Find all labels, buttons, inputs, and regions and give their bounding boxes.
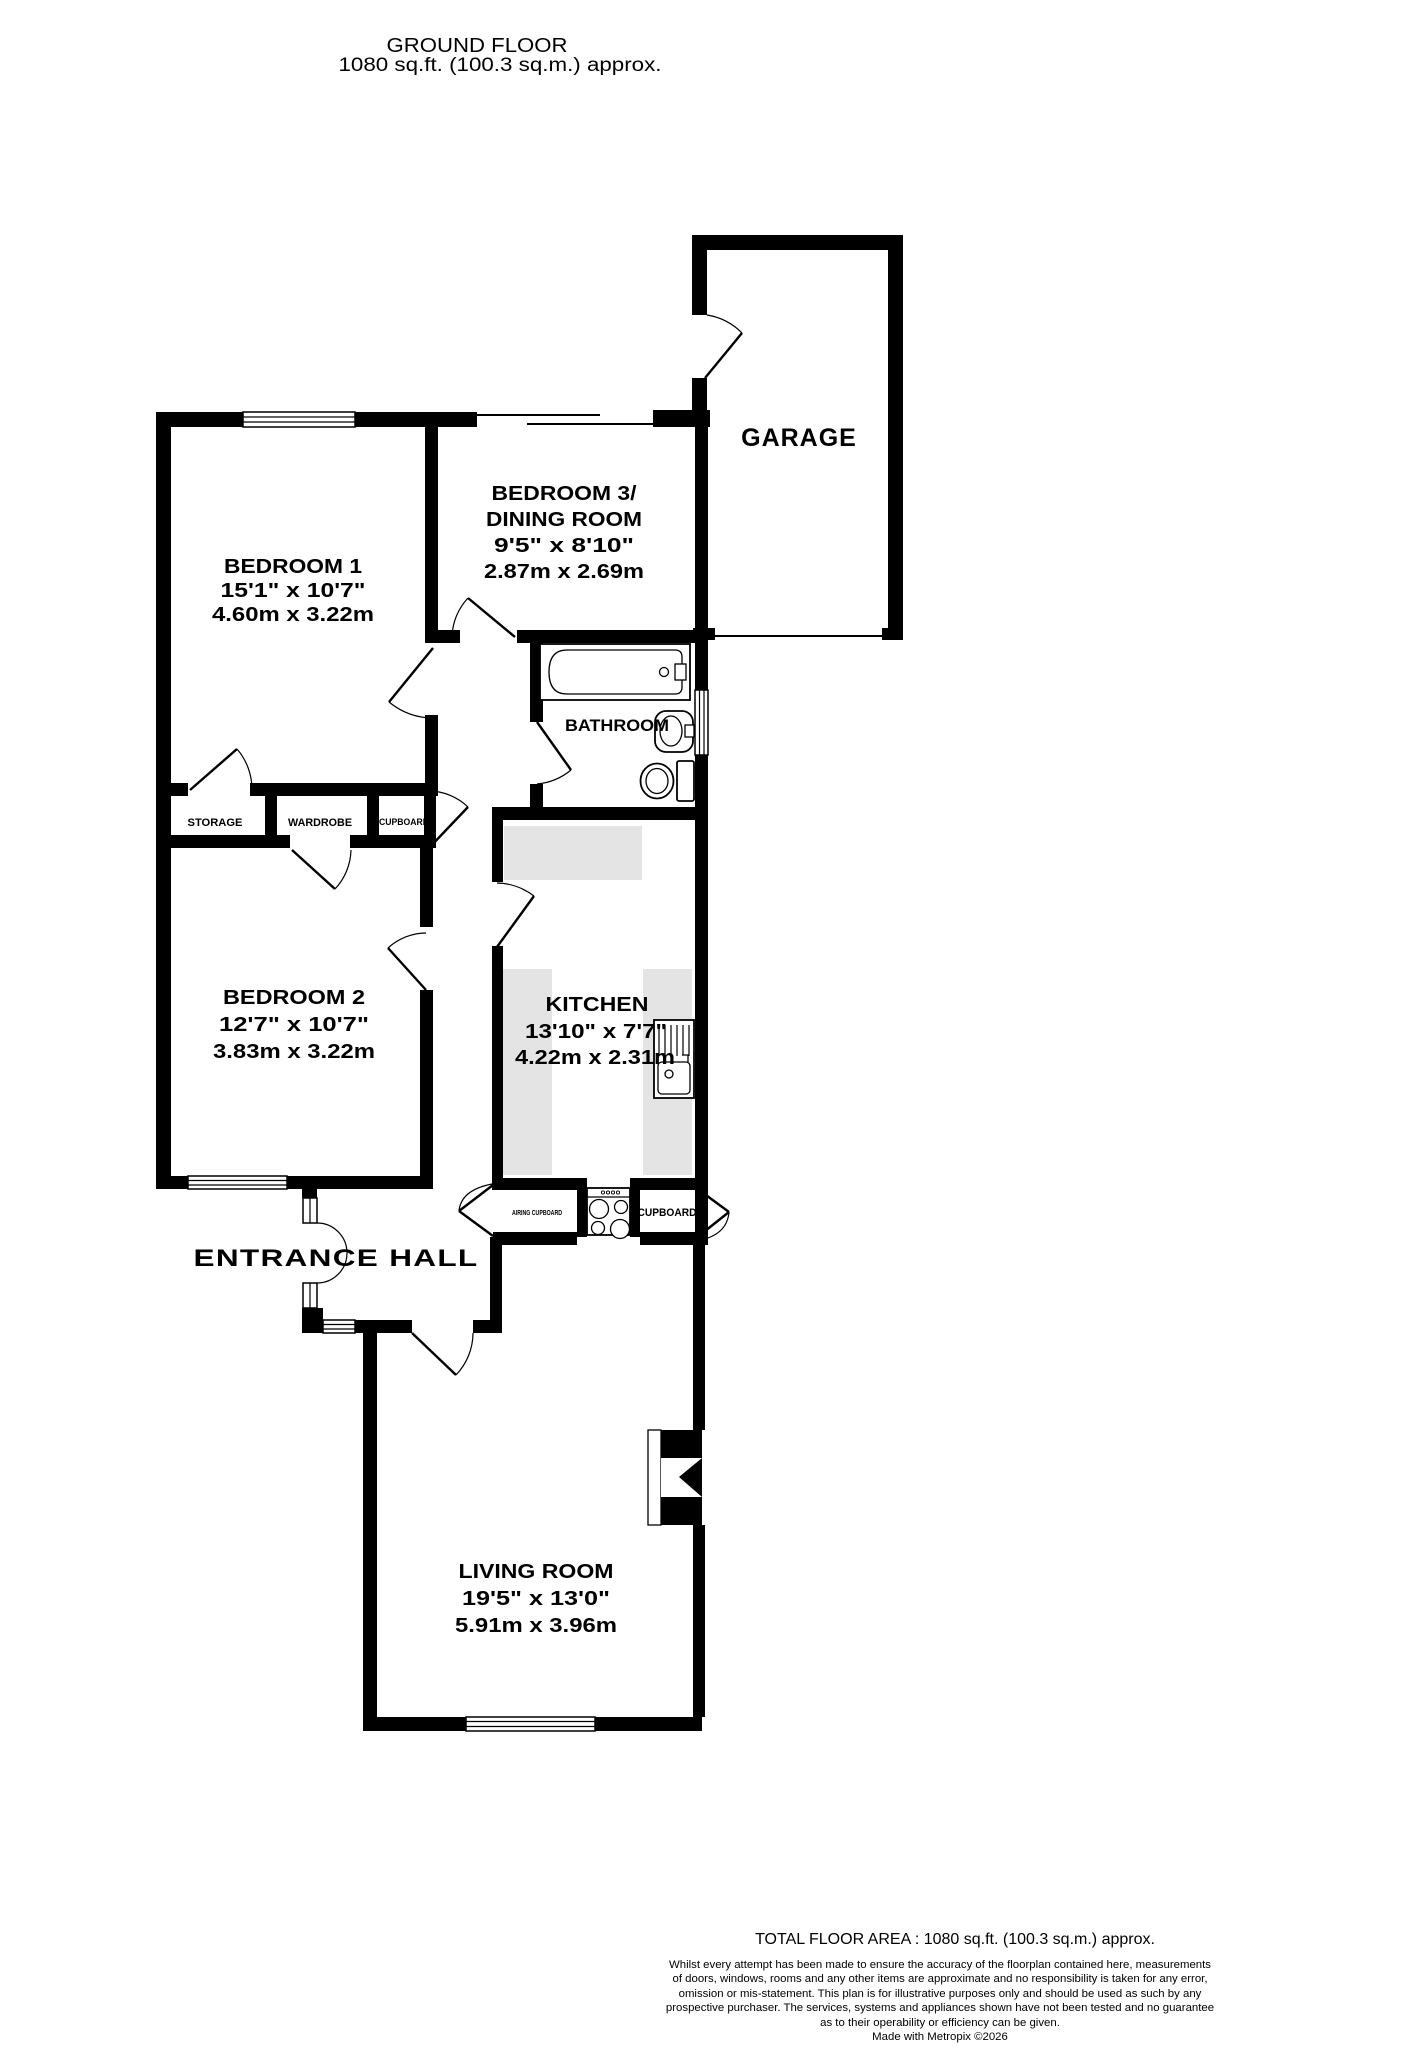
room-label-cupboard-kitchen: CUPBOARD: [638, 1207, 697, 1219]
plan-title: GROUND FLOOR: [387, 35, 568, 57]
room-label-entrance-hall: ENTRANCE HALL: [194, 1245, 479, 1272]
door-bedroom2: [388, 933, 426, 990]
fixtures: [540, 644, 702, 1525]
wall-segment: [888, 250, 903, 640]
cooker-burner: [592, 1222, 605, 1235]
room-label-airing-cupboard: AIRING CUPBOARD: [512, 1208, 562, 1217]
wall-segment: [640, 1178, 695, 1190]
door-swing-arc: [537, 770, 571, 784]
disclaimer-line: omission or mis-statement. This plan is …: [679, 1988, 1202, 2000]
wall-segment: [171, 783, 188, 796]
door-leaf: [705, 333, 742, 378]
wall-segment: [695, 427, 708, 630]
wall-segment: [492, 1178, 577, 1190]
wall-segment: [695, 643, 708, 690]
bathtub-tap: [675, 664, 686, 680]
door-living-room: [412, 1333, 473, 1375]
wall-segment: [425, 427, 438, 630]
sink-drain: [665, 1070, 673, 1078]
wall-segment: [640, 1232, 695, 1245]
door-swing-arc: [707, 315, 742, 333]
wall-segment: [265, 783, 277, 848]
wall-segment: [363, 1333, 377, 1731]
disclaimer-line: Whilst every attempt has been made to en…: [669, 1959, 1211, 1971]
room-label-bedroom1: BEDROOM 1: [224, 556, 362, 578]
room-size-living-room-imperial: 19'5" x 13'0": [462, 1588, 610, 1610]
wall-segment: [695, 820, 708, 1178]
toilet: [641, 761, 695, 801]
total-floor-area: TOTAL FLOOR AREA : 1080 sq.ft. (100.3 sq…: [755, 1931, 1155, 1948]
wall-segment: [420, 848, 433, 927]
room-size-bedroom3-imperial: 9'5" x 8'10": [494, 535, 634, 557]
cooker-burner: [590, 1200, 609, 1219]
wall-segment: [492, 807, 708, 820]
wall-segment: [367, 783, 379, 848]
window-frame: [323, 1320, 355, 1333]
window-bedroom1: [243, 412, 355, 427]
door-airing-cupboard: [459, 1184, 493, 1236]
window-frame: [243, 412, 355, 427]
door-leaf: [388, 948, 426, 990]
wall-segment: [530, 630, 708, 643]
room-size-bedroom2-metric: 3.83m x 3.22m: [213, 1041, 375, 1063]
wall-segment: [490, 1237, 502, 1333]
room-size-bedroom3-metric: 2.87m x 2.69m: [484, 561, 644, 583]
window-bathroom: [695, 690, 708, 755]
floorplan-drawing: GROUND FLOOR 1080 sq.ft. (100.3 sq.m.) a…: [0, 0, 1406, 2048]
room-label-kitchen: KITCHEN: [546, 994, 649, 1016]
disclaimer-line: as to their operability or efficiency ca…: [820, 2017, 1060, 2029]
wall-segment: [517, 630, 530, 643]
wall-segment: [493, 1232, 577, 1245]
room-label-wardrobe: WARDROBE: [288, 817, 352, 829]
bathtub-drain: [660, 668, 669, 677]
room-label-bedroom2: BEDROOM 2: [223, 987, 365, 1009]
wall-segment: [692, 250, 707, 315]
room-size-bedroom1-imperial: 15'1" x 10'7": [221, 580, 366, 602]
credit-line: Made with Metropix ©2026: [872, 2031, 1008, 2043]
toilet-bowl-inner: [646, 769, 668, 794]
door-leaf: [459, 1211, 493, 1236]
window-entrance-hall: [323, 1320, 355, 1333]
wall-segment: [302, 1176, 317, 1198]
cooker: [587, 1188, 630, 1239]
door-swing-arc: [456, 1333, 473, 1375]
wall-segment: [693, 1245, 705, 1430]
door-bedroom1: [389, 648, 433, 718]
room-size-bedroom2-imperial: 12'7" x 10'7": [219, 1014, 369, 1036]
wall-segment: [425, 715, 438, 796]
room-label-bedroom3-line2: DINING ROOM: [486, 509, 642, 531]
bathtub: [540, 644, 690, 700]
door-leaf: [292, 850, 335, 889]
window-frame: [695, 690, 708, 755]
fireplace-block: [661, 1497, 702, 1525]
room-size-living-room-metric: 5.91m x 3.96m: [455, 1615, 617, 1637]
plan-subtitle: 1080 sq.ft. (100.3 sq.m.) approx.: [339, 55, 662, 76]
room-label-bedroom3-line1: BEDROOM 3/: [492, 483, 637, 505]
window-living-room: [466, 1717, 595, 1731]
room-label-bathroom: BATHROOM: [565, 716, 669, 735]
toilet-cistern: [677, 761, 694, 801]
wall-segment: [492, 820, 503, 882]
wall-segment: [882, 628, 903, 640]
wall-segment: [693, 628, 715, 640]
fireplace: [648, 1430, 702, 1525]
wall-segment: [420, 990, 433, 1176]
footer: TOTAL FLOOR AREA : 1080 sq.ft. (100.3 sq…: [666, 1931, 1214, 2043]
wall-segment: [350, 835, 433, 848]
wall-segment: [363, 1717, 466, 1731]
door-wardrobe: [292, 850, 351, 889]
room-label-cupboard-hall: CUPBOARD: [379, 817, 429, 828]
room-label-storage: STORAGE: [188, 817, 243, 829]
door-swing-arc: [237, 749, 252, 790]
door-bedroom3: [452, 598, 515, 637]
wall-segment: [577, 1178, 587, 1237]
door-swing-arc: [388, 933, 426, 948]
wall-segment: [156, 412, 171, 1189]
room-label-living-room: LIVING ROOM: [459, 1561, 614, 1583]
wall-segment: [425, 630, 460, 643]
disclaimer-line: of doors, windows, rooms and any other i…: [673, 1973, 1208, 1985]
wall-segment: [355, 412, 477, 427]
cooker-burner: [611, 1220, 630, 1239]
floorplan-page: GROUND FLOOR 1080 sq.ft. (100.3 sq.m.) a…: [0, 0, 1406, 2048]
room-label-garage: GARAGE: [741, 424, 857, 452]
door-leaf: [497, 896, 534, 947]
room-size-kitchen-imperial: 13'10" x 7'7": [525, 1021, 667, 1043]
fireplace-block: [661, 1430, 702, 1458]
wall-segment: [302, 1308, 323, 1333]
fireplace-hearth: [648, 1430, 661, 1525]
wall-segment: [693, 1525, 705, 1717]
wall-segment: [492, 946, 503, 1178]
door-kitchen: [497, 883, 534, 947]
wall-segment: [653, 410, 710, 427]
door-leaf: [389, 648, 433, 702]
door-swing-arc: [497, 883, 534, 896]
counter: [504, 826, 642, 880]
window-bedroom2: [188, 1176, 287, 1189]
wall-segment: [692, 378, 707, 412]
cooker-burner: [615, 1201, 628, 1214]
door-storage: [190, 749, 252, 790]
room-size-bedroom1-metric: 4.60m x 3.22m: [212, 604, 374, 626]
wall-segment: [156, 1176, 188, 1189]
door-leaf: [412, 1333, 456, 1375]
window-frame: [466, 1717, 595, 1731]
room-size-kitchen-metric: 4.22m x 2.31m: [515, 1047, 675, 1069]
door-leaf: [468, 598, 515, 637]
door-swing-arc: [335, 850, 351, 889]
wall-segment: [595, 1717, 702, 1731]
wall-segment: [473, 1320, 502, 1333]
basin-tap: [685, 725, 694, 737]
door-leaf: [190, 749, 237, 790]
door-garage: [705, 315, 742, 378]
wall-segment: [355, 1320, 412, 1333]
disclaimer-line: prospective purchaser. The services, sys…: [666, 2002, 1214, 2014]
wall-segment: [692, 235, 903, 250]
window-frame: [188, 1176, 287, 1189]
